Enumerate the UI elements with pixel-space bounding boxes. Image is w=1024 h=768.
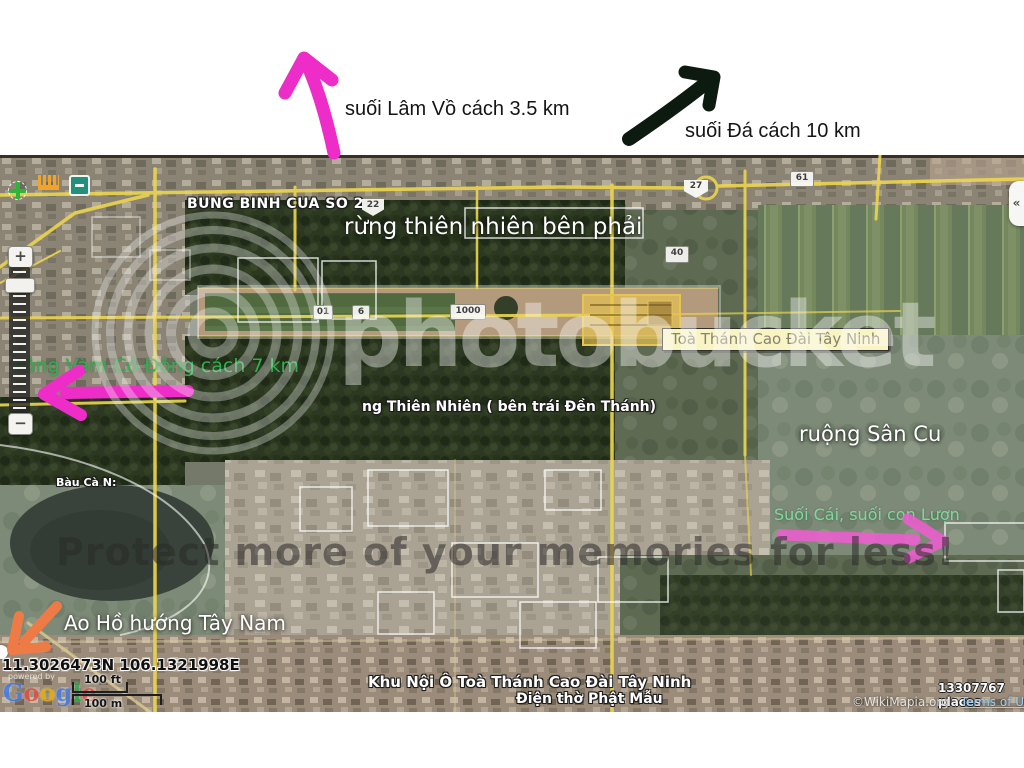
temple-tooltip: Toà Thánh Cao Đài Tây Ninh [662,328,889,351]
annotation-da: suối Đá cách 10 km [685,120,861,143]
road-shield-61: 61 [790,171,814,187]
complex-label: Khu Nội Ô Toà Thánh Cao Đài Tây Ninh [368,673,691,691]
page: { "top_annotations": { "lam_vo": {"label… [0,0,1024,768]
roundabout-label: BUNG BINH CUA SO 2 [187,196,364,212]
place-marker-icon[interactable] [69,175,90,196]
wikimapia-credit: ©WikiMapia.org - [852,695,957,709]
plot-label-01: 01 [313,305,333,320]
zoom-out-button[interactable]: − [8,413,33,435]
zoom-in-button[interactable]: + [8,246,33,268]
forest-right-label: rừng thiên nhiên bên phải [344,214,642,240]
river-annotation: sông Vàm Cỏ Đông cách 7 km [14,355,299,377]
stream-annotation: Suối Cái, suối con Lượn [774,505,960,524]
zoom-control: + − [7,245,35,435]
plus-marker-icon[interactable] [8,181,27,200]
zoom-slider-handle[interactable] [5,278,35,293]
plot-label-1000: 1000 [450,304,486,320]
arrow-lam-vo-shaft [306,62,334,153]
pond-label: Bàu Cà N: [56,476,116,489]
shrine-label: Điện thờ Phật Mẫu [516,691,663,707]
field-label: ruộng Sân Cu [799,422,941,446]
road-shield-40: 40 [665,246,689,263]
arrow-da-head [685,72,714,105]
forest-left-label: ng Thiên Nhiên ( bên trái Đền Thánh) [362,399,656,415]
fence-marker-icon[interactable] [38,175,59,190]
annotation-lam-vo: suối Lâm Vồ cách 3.5 km [345,98,570,121]
arrow-lam-vo-head [285,58,332,93]
scale-feet-bar [72,682,128,693]
scale-meters-label: 100 m [84,697,122,710]
attribution: ©WikiMapia.org - Terms of Use [852,695,1024,709]
lake-annotation: Ao Hồ hướng Tây Nam [64,611,286,635]
plot-label-6: 6 [352,305,370,320]
collapse-panel-button[interactable]: « [1009,181,1024,226]
terms-of-use-link[interactable]: Terms of Use [961,695,1024,709]
